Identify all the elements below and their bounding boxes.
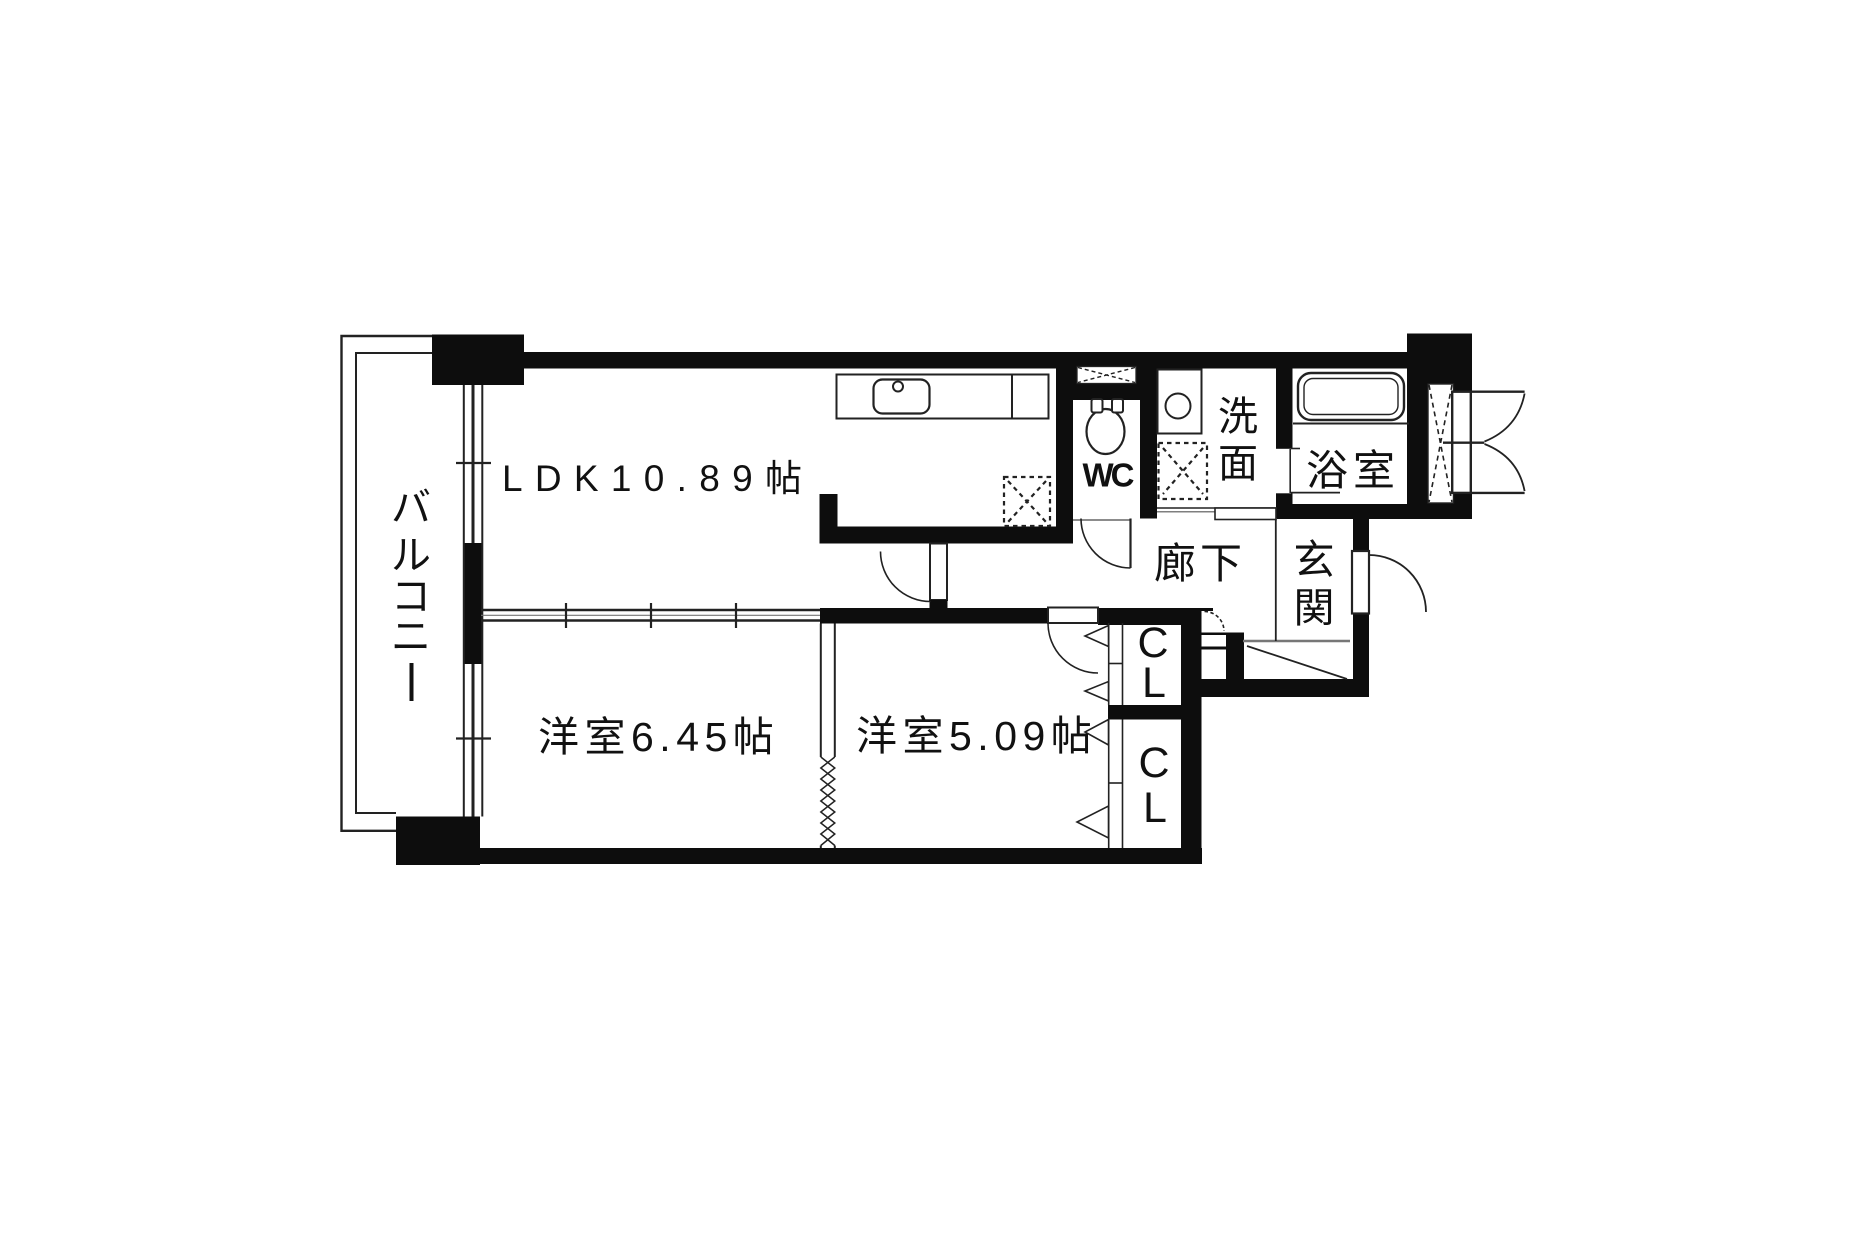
svg-text:浴室: 浴室 xyxy=(1306,447,1400,494)
svg-text:洗: 洗 xyxy=(1218,395,1258,439)
svg-text:バ: バ xyxy=(391,486,431,530)
svg-text:洋室6.45帖: 洋室6.45帖 xyxy=(538,714,779,760)
svg-text:洋室5.09帖: 洋室5.09帖 xyxy=(856,713,1097,759)
svg-text:コ: コ xyxy=(391,575,431,619)
svg-text:C: C xyxy=(1138,739,1169,787)
svg-text:LDK10.89帖: LDK10.89帖 xyxy=(502,458,814,499)
svg-text:玄: 玄 xyxy=(1294,537,1335,583)
svg-text:面: 面 xyxy=(1218,442,1258,486)
svg-text:L: L xyxy=(1142,659,1166,707)
svg-text:ル: ル xyxy=(391,534,431,578)
svg-text:WC: WC xyxy=(1083,457,1134,494)
svg-text:L: L xyxy=(1143,784,1167,832)
svg-text:関: 関 xyxy=(1294,585,1335,631)
svg-text:廊下: 廊下 xyxy=(1154,540,1246,587)
svg-text:ニ: ニ xyxy=(391,615,431,659)
